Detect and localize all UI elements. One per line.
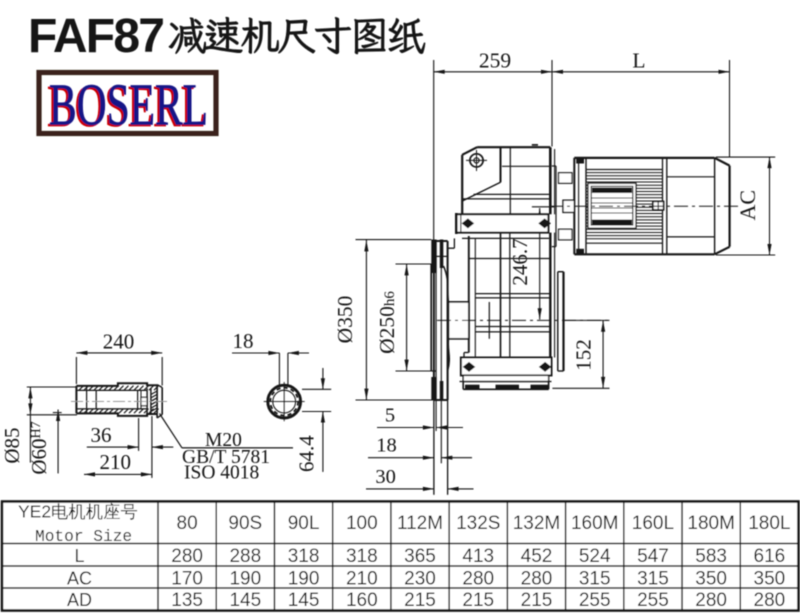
svg-text:36: 36 [91, 423, 112, 447]
svg-text:255: 255 [579, 590, 611, 611]
svg-text:Ø350: Ø350 [333, 296, 357, 344]
svg-text:AC: AC [735, 190, 760, 221]
svg-text:190: 190 [229, 568, 261, 589]
svg-text:413: 413 [462, 546, 494, 567]
svg-text:180L: 180L [748, 513, 790, 534]
svg-text:L: L [74, 546, 84, 566]
svg-text:18: 18 [376, 435, 397, 457]
svg-text:315: 315 [579, 568, 611, 589]
svg-text:5: 5 [385, 405, 395, 427]
svg-text:152: 152 [572, 339, 596, 371]
svg-text:240: 240 [103, 330, 135, 354]
svg-text:132M: 132M [513, 513, 561, 534]
svg-text:315: 315 [637, 568, 669, 589]
svg-text:160: 160 [346, 590, 378, 611]
svg-text:350: 350 [695, 568, 727, 589]
svg-text:318: 318 [346, 546, 378, 567]
svg-text:90L: 90L [288, 513, 320, 534]
svg-text:112M: 112M [397, 513, 443, 534]
svg-text:ISO 4018: ISO 4018 [184, 463, 259, 484]
svg-text:365: 365 [404, 546, 436, 567]
svg-text:280: 280 [754, 590, 786, 611]
svg-text:280: 280 [462, 568, 494, 589]
svg-text:80: 80 [177, 513, 198, 534]
svg-text:350: 350 [754, 568, 786, 589]
svg-text:AC: AC [67, 568, 92, 588]
svg-text:30: 30 [375, 466, 396, 488]
svg-text:YE2: YE2 [18, 502, 51, 522]
svg-text:215: 215 [462, 590, 494, 611]
svg-text:210: 210 [346, 568, 378, 589]
svg-text:Motor Size: Motor Size [35, 528, 132, 546]
svg-text:230: 230 [404, 568, 436, 589]
svg-text:180M: 180M [687, 513, 735, 534]
svg-text:318: 318 [288, 546, 320, 567]
svg-text:524: 524 [579, 546, 611, 567]
svg-text:18: 18 [233, 329, 254, 353]
svg-text:160M: 160M [571, 513, 619, 534]
svg-text:AD: AD [67, 590, 92, 610]
svg-text:170: 170 [171, 568, 203, 589]
svg-text:215: 215 [404, 590, 436, 611]
svg-text:90S: 90S [228, 513, 262, 534]
svg-text:259: 259 [479, 49, 511, 73]
svg-text:160L: 160L [632, 513, 674, 534]
svg-text:583: 583 [695, 546, 727, 567]
svg-text:100: 100 [346, 513, 378, 534]
svg-text:616: 616 [754, 546, 786, 567]
svg-text:288: 288 [229, 546, 261, 567]
svg-text:280: 280 [521, 568, 553, 589]
svg-text:145: 145 [229, 590, 261, 611]
svg-text:L: L [632, 49, 645, 73]
svg-text:280: 280 [695, 590, 727, 611]
svg-text:132S: 132S [456, 513, 500, 534]
svg-text:255: 255 [637, 590, 669, 611]
svg-text:280: 280 [171, 546, 203, 567]
svg-text:BOSERL: BOSERL [49, 72, 208, 138]
svg-text:452: 452 [521, 546, 553, 567]
svg-text:547: 547 [637, 546, 669, 567]
svg-text:135: 135 [171, 590, 203, 611]
svg-text:215: 215 [521, 590, 553, 611]
svg-text:145: 145 [288, 590, 320, 611]
svg-text:Ø85: Ø85 [0, 428, 24, 464]
svg-text:246.7: 246.7 [508, 238, 532, 285]
svg-text:64.4: 64.4 [295, 435, 319, 472]
svg-text:210: 210 [100, 450, 132, 474]
svg-text:FAF87: FAF87 [28, 10, 165, 63]
svg-text:190: 190 [288, 568, 320, 589]
